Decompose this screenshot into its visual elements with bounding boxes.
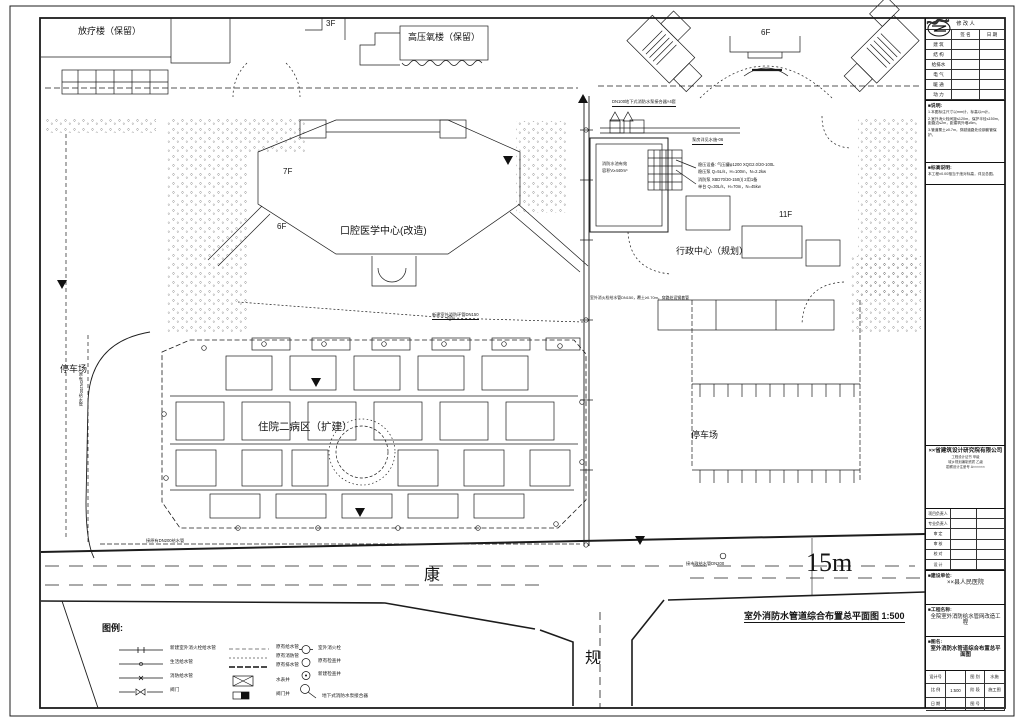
annotation-spec2: 稳压泵 Q=5L/s，H=100m，N=2.2kw [698, 170, 766, 175]
legend-label: 原有检查井 [318, 658, 341, 663]
annotation-spec4: 单台 Q=30L/s，H=70m，N=45kw [698, 185, 761, 190]
annotation-spec3: 消防泵 XBD70/30-150(I) 2用1备 [698, 178, 757, 183]
revision-row-label: 给排水 [926, 60, 952, 70]
legend-new-manhole-icon [298, 670, 314, 681]
project-name: 全院室外消防给水管网改造工程 [926, 613, 1005, 628]
legend-label: 水表井 [276, 677, 290, 682]
sheet-info-grid: 设计号 图 别 水施 比 例 1:500 阶 段 施工图 日 期 图 号 [926, 671, 1005, 711]
building-label-ward2: 住院二病区（扩建） [258, 421, 353, 433]
grid-label: 图 别 [966, 671, 985, 684]
revision-col-sign: 签 名 [952, 30, 980, 40]
revision-col-date: 日 期 [980, 30, 1005, 40]
annotation-spec1: 稳压设备: 气压罐φ1200 XQG2.0/20-100L [698, 163, 775, 168]
legend-label: 阀门井 [276, 691, 290, 696]
sign-role: 专业负责人 [926, 519, 951, 529]
legend-line-new-hydrant-icon [118, 646, 164, 654]
sign-role: 项目负责人 [926, 509, 951, 519]
sheet-name-label: ■图名: [926, 637, 1005, 645]
legend-label: 消防给水管 [170, 673, 193, 678]
note-line: 1.本图标注尺寸以mm计，标高以m计。 [926, 109, 1005, 116]
owner-title: ■建设单位: [926, 571, 1005, 579]
building-label-hyperbaric: 高压氧楼（保留） [408, 32, 480, 42]
company-section: ××省建筑设计研究院有限公司 工程设计证书 甲级 城乡规划编制资质 乙级 勘察设… [926, 446, 1005, 509]
revision-row-label: 结 构 [926, 50, 952, 60]
project-section: ■工程名称: 全院室外消防给水管网改造工程 [926, 605, 1005, 637]
notes-section: ■说明: 1.本图标注尺寸以mm计，标高以m计。 2.室外消火栓间距≤120m，… [926, 101, 1005, 163]
grid-value [946, 698, 966, 711]
legend-water-meter-well-icon [232, 675, 254, 687]
legend-line-domestic-icon [118, 660, 164, 668]
floor-label-11f: 11F [779, 210, 792, 219]
grid-label: 比 例 [926, 684, 946, 697]
grid-value: 水施 [985, 671, 1005, 684]
legend-valve-well-icon [232, 691, 250, 700]
legend-label: 室外消火栓 [318, 645, 341, 650]
annotation-pool-2: 容积V≥440m³ [602, 169, 627, 174]
floor-label-6f-ne: 6F [761, 28, 770, 37]
grid-value [946, 671, 966, 684]
annotation-hydrant-line: 新建室外消防环管DN150 [432, 313, 479, 320]
drawing-title: 室外消防水管道综合布置总平面图 1:500 [744, 611, 905, 623]
road-label-kang: 康 [424, 567, 440, 585]
building-label-radiotherapy: 放疗楼（保留） [78, 26, 141, 36]
legend-label: 地下式消防水泵接合器 [322, 693, 368, 698]
revision-row-label: 暖 通 [926, 80, 952, 90]
hydrant-symbols [162, 316, 726, 559]
annotation-pump-adapter: DN100地下式消防水泵接合器×4套 [612, 100, 676, 107]
floor-label-7f: 7F [283, 167, 292, 176]
owner-section: ■建设单位: ××县人民医院 [926, 571, 1005, 605]
legend-outdoor-hydrant-icon [298, 644, 314, 655]
grid-value: 1:500 [946, 684, 966, 697]
legend: 图例: 新建室外消火栓给水管 生活给水管 消防给水管 阀门 原有给水管 原有消防… [100, 620, 420, 712]
legend-label: 原有消防管 [276, 653, 299, 658]
building-label-admin-center: 行政中心（规划） [676, 246, 748, 256]
datum-text: 本工程±0.00相当于绝对标高，详见总图。 [926, 171, 1005, 178]
legend-line-old-fire-icon [228, 655, 270, 661]
annotation-city-main: 接市政给水管DN200 [686, 562, 724, 567]
annotation-west-pipe: 原有DN200给水管 [78, 372, 83, 406]
grid-value [985, 698, 1005, 711]
sign-role: 审 核 [926, 540, 951, 550]
annotation-pump-room-ref: 泵房详见水施-06 [692, 138, 723, 145]
legend-line-old-water-icon [228, 646, 270, 652]
parking-label-east: 停车场 [691, 430, 718, 440]
datum-title: ■标高说明: [926, 163, 1005, 171]
legend-pump-adapter-icon [298, 683, 318, 699]
annotation-keep-main: 接原有DN200给水管 [146, 539, 184, 544]
building-label-dental-center: 口腔医学中心(改造) [340, 226, 427, 238]
legend-label: 阀门 [170, 687, 179, 692]
planting-hatch [44, 116, 921, 332]
annotation-pool-1: 消防水池有效 [602, 162, 627, 167]
company-cert-3: 勘察设计注册号 A×××××× [926, 464, 1005, 469]
revision-row-label: 动 力 [926, 90, 952, 100]
grid-label: 设计号 [926, 671, 946, 684]
legend-label: 生活给水管 [170, 659, 193, 664]
notes-title: ■说明: [926, 101, 1005, 109]
legend-valve-icon [118, 688, 164, 696]
grid-label: 图 号 [966, 698, 985, 711]
sign-role: 设 计 [926, 560, 951, 570]
road-label-gui: 规 [585, 650, 601, 668]
legend-label: 原有给水管 [276, 644, 299, 649]
road-width-label: 15m [806, 548, 852, 578]
note-line: 3.管道覆土≥0.7m，穿越道路处设钢套管保护。 [926, 127, 1005, 138]
legend-line-fire-icon [118, 674, 164, 682]
sign-role: 校 对 [926, 550, 951, 560]
sign-role: 审 定 [926, 529, 951, 539]
cad-site-plan-sheet: 放疗楼（保留） 3F 高压氧楼（保留） 6F 7F 6F 口腔医学中心(改造) … [0, 0, 1024, 723]
legend-label: 新建室外消火栓给水管 [170, 645, 216, 650]
floor-label-3f: 3F [326, 19, 335, 28]
annotation-long-spec: 室外消火栓给水管DN150，覆土≥0.70m，穿路处设钢套管 [590, 296, 689, 300]
legend-label: 原有排水管 [276, 662, 299, 667]
owner-name: ××县人民医院 [926, 579, 1005, 588]
legend-line-old-drain-icon [228, 664, 270, 670]
project-title-label: ■工程名称: [926, 605, 1005, 613]
sheet-name-section: ■图名: 室外消防水管道综合布置总平面图 [926, 637, 1005, 671]
floor-label-6f-dental: 6F [277, 222, 286, 231]
sheet-name: 室外消防水管道综合布置总平面图 [926, 645, 1005, 660]
revision-row-label: 建 筑 [926, 40, 952, 50]
signature-table: 项目负责人 专业负责人 审 定 审 核 校 对 设 计 [926, 509, 1005, 571]
note-line: 2.室外消火栓间距≤120m，保护半径≤150m，距路边≤2m，距建筑外墙≥5m… [926, 116, 1005, 127]
grid-value: 施工图 [985, 684, 1005, 697]
legend-title: 图例: [102, 623, 123, 633]
datum-section: ■标高说明: 本工程±0.00相当于绝对标高，详见总图。 [926, 163, 1005, 185]
grid-label: 阶 段 [966, 684, 985, 697]
legend-old-manhole-icon [298, 657, 314, 668]
legend-label: 新建检查井 [318, 671, 341, 676]
title-block-spacer [926, 185, 1005, 446]
grid-label: 日 期 [926, 698, 946, 711]
title-block: 修 改 人 签 名 日 期 建 筑 结 构 给排水 电 气 暖 通 动 力 ■说… [925, 18, 1005, 708]
revision-row-label: 电 气 [926, 70, 952, 80]
company-name: ××省建筑设计研究院有限公司 [926, 446, 1005, 454]
